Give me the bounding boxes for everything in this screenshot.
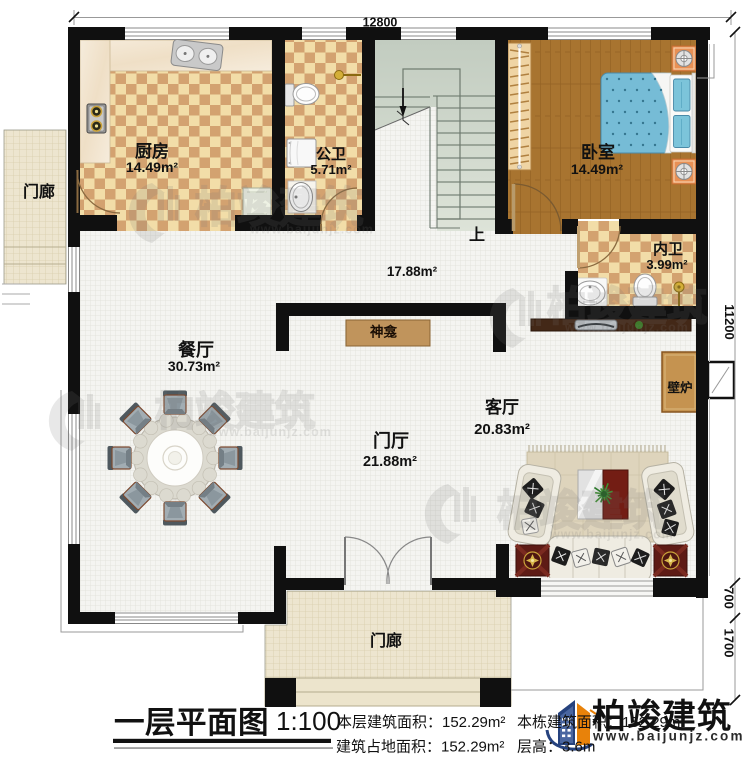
svg-text:壁炉: 壁炉 [667,380,692,395]
svg-text:一层平面图: 一层平面图 [114,706,269,740]
svg-text:www.baijunjz.com: www.baijunjz.com [549,528,674,542]
svg-text:门廊: 门廊 [23,182,55,201]
svg-text:神龛: 神龛 [370,324,397,340]
svg-text:门厅: 门厅 [373,430,409,451]
svg-text:1700: 1700 [722,629,737,658]
svg-text:12800: 12800 [363,16,398,30]
svg-text:14.49m²: 14.49m² [126,159,178,175]
svg-text:卧室: 卧室 [581,142,615,162]
svg-text:本层建筑面积：152.29m²: 本层建筑面积：152.29m² [337,714,505,731]
svg-text:www.baijunjz.com: www.baijunjz.com [207,425,332,439]
svg-text:厨房: 厨房 [135,141,169,161]
svg-text:内卫: 内卫 [653,240,683,258]
svg-text:客厅: 客厅 [484,397,519,417]
svg-text:3.99m²: 3.99m² [646,257,688,272]
svg-text:17.88m²: 17.88m² [387,264,438,279]
svg-text:700: 700 [722,587,737,609]
svg-text:5.71m²: 5.71m² [310,162,352,177]
svg-text:30.73m²: 30.73m² [168,358,220,374]
svg-text:公卫: 公卫 [316,146,346,163]
svg-text:门廊: 门廊 [370,631,402,650]
svg-text:建筑占地面积：152.29m²: 建筑占地面积：152.29m² [336,739,504,756]
svg-text:14.49m²: 14.49m² [571,161,623,177]
svg-text:上: 上 [469,226,485,244]
svg-text:层高：3.6m: 层高：3.6m [517,739,595,756]
svg-text:www.baijunjz.com: www.baijunjz.com [249,223,374,237]
svg-text:11200: 11200 [722,304,737,339]
svg-text:21.88m²: 21.88m² [363,454,417,470]
svg-text:1:100: 1:100 [276,706,341,736]
svg-text:餐厅: 餐厅 [177,339,214,360]
svg-text:www.baijunjz.com: www.baijunjz.com [564,321,689,335]
svg-text:20.83m²: 20.83m² [474,421,530,438]
svg-text:www.baijunjz.com: www.baijunjz.com [592,729,745,744]
